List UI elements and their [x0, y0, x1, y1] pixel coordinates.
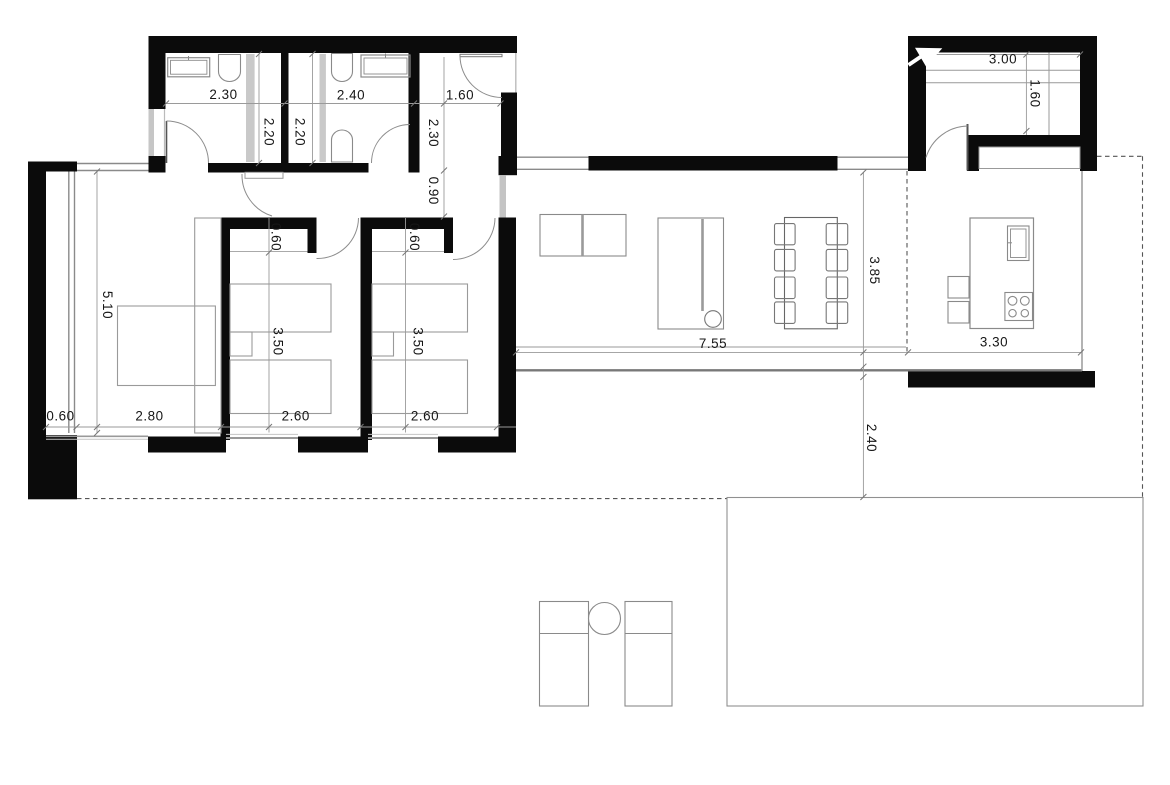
svg-text:7.55: 7.55	[699, 336, 727, 351]
svg-text:2.30: 2.30	[209, 87, 237, 102]
svg-text:1.60: 1.60	[446, 88, 474, 103]
svg-text:2.20: 2.20	[293, 118, 308, 146]
svg-text:2.40: 2.40	[864, 424, 879, 452]
svg-text:2.20: 2.20	[262, 118, 277, 146]
svg-text:0.60: 0.60	[407, 223, 422, 251]
svg-text:2.60: 2.60	[411, 409, 439, 424]
svg-text:3.50: 3.50	[271, 327, 286, 355]
svg-text:3.50: 3.50	[411, 327, 426, 355]
svg-text:2.30: 2.30	[426, 119, 441, 147]
svg-text:0.60: 0.60	[46, 409, 74, 424]
svg-text:3.00: 3.00	[989, 52, 1017, 67]
svg-text:3.30: 3.30	[980, 335, 1008, 350]
svg-text:5.10: 5.10	[100, 291, 115, 319]
svg-text:0.60: 0.60	[269, 223, 284, 251]
svg-text:0.90: 0.90	[426, 177, 441, 205]
svg-text:2.80: 2.80	[135, 409, 163, 424]
svg-text:2.60: 2.60	[282, 409, 310, 424]
svg-text:3.85: 3.85	[867, 256, 882, 284]
svg-text:2.40: 2.40	[337, 88, 365, 103]
svg-text:1.60: 1.60	[1028, 79, 1043, 107]
